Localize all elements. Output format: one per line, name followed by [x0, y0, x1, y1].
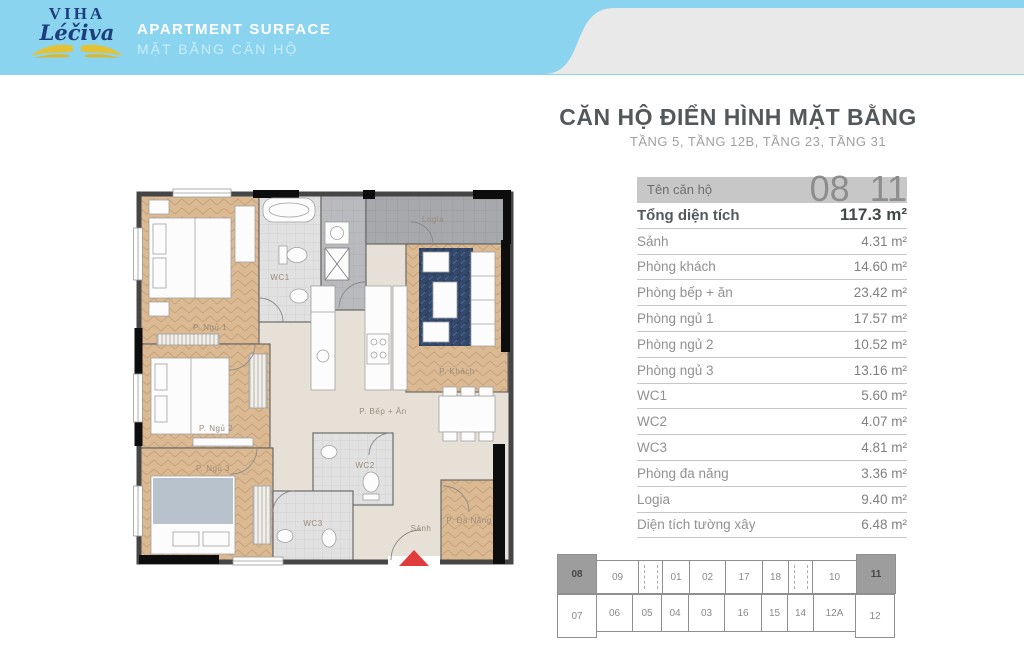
table-row: WC2 4.07 m²	[637, 409, 907, 435]
row-value: 5.60 m²	[861, 388, 907, 403]
table-row: Phòng ngủ 2 10.52 m²	[637, 332, 907, 358]
brand-logo[interactable]: VIHA Léčiva	[22, 4, 132, 64]
row-value: 9.40 m²	[861, 492, 907, 507]
armchair	[423, 322, 449, 342]
coffee-table	[433, 282, 457, 318]
area-table: Tổng diện tích 117.3 m² Sảnh 4.31 m² Phò…	[637, 203, 907, 538]
keymap-cell-16[interactable]: 16	[724, 594, 762, 632]
elevator-dashes-icon	[644, 565, 658, 588]
row-label: WC3	[637, 440, 667, 455]
row-value: 14.60 m²	[854, 259, 907, 274]
page-subtitle: TẦNG 5, TẦNG 12B, TẦNG 23, TẦNG 31	[596, 134, 920, 149]
keymap-cell-06[interactable]: 06	[596, 594, 633, 632]
row-label: Phòng ngủ 1	[637, 311, 714, 326]
sink	[277, 530, 293, 543]
row-value: 4.07 m²	[861, 414, 907, 429]
row-label: Phòng khách	[637, 259, 716, 274]
row-label: Logia	[637, 492, 670, 507]
row-label: Tổng diện tích	[637, 207, 740, 224]
keymap-cell-14[interactable]: 14	[787, 594, 814, 632]
row-label: Phòng ngủ 2	[637, 337, 714, 352]
row-value: 17.57 m²	[854, 311, 907, 326]
row-label: Phòng ngủ 3	[637, 363, 714, 378]
table-row: Phòng ngủ 1 17.57 m²	[637, 306, 907, 332]
elevator-dashes-icon	[794, 565, 808, 588]
logo-text-leciva: Léčiva	[22, 20, 132, 45]
row-label: Diện tích tường xây	[637, 517, 755, 532]
table-row: Diện tích tường xây 6.48 m²	[637, 513, 907, 539]
sink	[290, 289, 308, 303]
sofa	[471, 252, 495, 346]
keymap-cell-05[interactable]: 05	[632, 594, 662, 632]
logo-wings-icon	[22, 43, 132, 64]
room-label-kitchen: P. Bếp + Ăn	[359, 407, 406, 416]
kitchen-island	[393, 286, 407, 390]
row-value: 6.48 m²	[861, 517, 907, 532]
keymap-cell-02[interactable]: 02	[689, 560, 726, 594]
room-label-wc2: WC2	[355, 461, 374, 470]
row-value: 3.36 m²	[861, 466, 907, 481]
keymap-cell-04[interactable]: 04	[661, 594, 689, 632]
header-banner: VIHA Léčiva APARTMENT SURFACE MẶT BẰNG C…	[0, 0, 1024, 75]
keymap-cell-11[interactable]: 11	[856, 554, 896, 594]
stove	[367, 334, 389, 364]
keymap-cell-09[interactable]: 09	[596, 560, 639, 594]
room-label-bedroom-1: P. Ngủ 1	[193, 323, 227, 332]
room-label-living: P. Khách	[439, 367, 474, 376]
banner-subtitle: MẶT BẰNG CĂN HỘ	[137, 41, 298, 57]
room-label-bedroom-2: P. Ngủ 2	[199, 424, 233, 433]
row-label: WC1	[637, 388, 667, 403]
table-row-total: Tổng diện tích 117.3 m²	[637, 203, 907, 229]
room-label-bedroom-3: P. Ngủ 3	[196, 464, 230, 473]
keymap-bottom-row: 07 06 05 04 03 16 15 14 12A 12	[557, 594, 909, 638]
row-value: 117.3 m²	[840, 205, 907, 225]
keymap-cell-08[interactable]: 08	[557, 554, 597, 594]
keymap-cell-18[interactable]: 18	[762, 560, 789, 594]
row-value: 13.16 m²	[854, 363, 907, 378]
keymap-cell-10[interactable]: 10	[812, 560, 857, 594]
row-label: Phòng đa năng	[637, 466, 729, 481]
room-label-hall: Sảnh	[411, 524, 432, 533]
row-label: WC2	[637, 414, 667, 429]
table-row: Phòng đa năng 3.36 m²	[637, 461, 907, 487]
keymap-cell-17[interactable]: 17	[725, 560, 763, 594]
toilet	[322, 529, 336, 547]
keymap-elevator-cell	[788, 560, 813, 594]
toilet	[287, 248, 307, 263]
room-label-logia: Logia	[422, 215, 444, 224]
keymap-cell-03[interactable]: 03	[688, 594, 725, 632]
row-value: 10.52 m²	[854, 337, 907, 352]
room-label-wc3: WC3	[303, 519, 322, 528]
row-label: Sảnh	[637, 234, 669, 249]
keymap-cell-15[interactable]: 15	[761, 594, 788, 632]
room-label-wc1: WC1	[270, 273, 289, 282]
floor-key-map: 08 09 01 02 17 18 10 11 07 06 05 04 03 1…	[557, 553, 909, 638]
table-row: WC1 5.60 m²	[637, 384, 907, 410]
row-value: 23.42 m²	[854, 285, 907, 300]
floor-plan: P. Ngủ 1 WC1 Logia P. Khách P. Bếp + Ăn …	[133, 188, 543, 568]
banner-title: APARTMENT SURFACE	[137, 21, 331, 38]
row-label: Phòng bếp + ăn	[637, 285, 733, 300]
keymap-cell-07[interactable]: 07	[557, 594, 597, 638]
sink	[321, 446, 337, 459]
keymap-cell-12[interactable]: 12	[855, 594, 895, 638]
page-title: CĂN HỘ ĐIỂN HÌNH MẶT BẰNG	[556, 104, 920, 131]
table-row: Sảnh 4.31 m²	[637, 229, 907, 255]
keymap-top-row: 08 09 01 02 17 18 10 11	[557, 553, 909, 594]
row-value: 4.31 m²	[861, 234, 907, 249]
toilet	[363, 472, 379, 492]
table-row: Phòng ngủ 3 13.16 m²	[637, 358, 907, 384]
keymap-cell-12A[interactable]: 12A	[813, 594, 856, 632]
table-row: Logia 9.40 m²	[637, 487, 907, 513]
table-row: Phòng khách 14.60 m²	[637, 255, 907, 281]
apartment-surface-page: VIHA Léčiva APARTMENT SURFACE MẶT BẰNG C…	[0, 0, 1024, 663]
keymap-cell-01[interactable]: 01	[662, 560, 690, 594]
wave-decoration	[544, 8, 1024, 74]
table-row: WC3 4.81 m²	[637, 435, 907, 461]
room-label-multipurpose: P. Đa Năng	[446, 516, 491, 525]
armchair	[423, 252, 449, 272]
keymap-elevator-cell	[638, 560, 663, 594]
table-row: Phòng bếp + ăn 23.42 m²	[637, 280, 907, 306]
dining-table	[439, 396, 495, 432]
row-value: 4.81 m²	[861, 440, 907, 455]
